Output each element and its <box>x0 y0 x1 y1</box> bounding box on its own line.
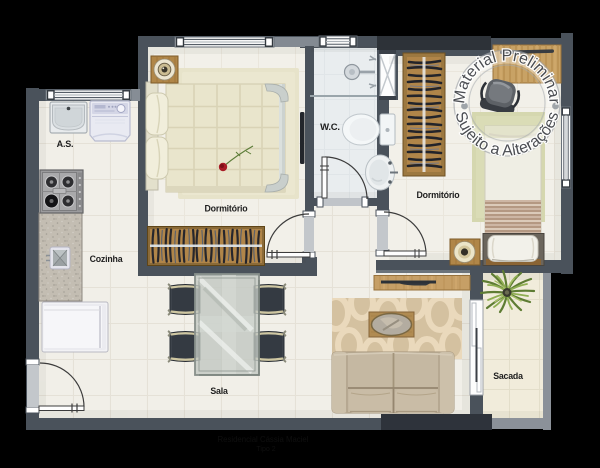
svg-text:Tipo 2: Tipo 2 <box>256 446 275 453</box>
svg-text:Sacada: Sacada <box>493 371 523 381</box>
svg-text:Dormitório: Dormitório <box>205 204 249 214</box>
svg-text:Residencial Cássia Maciel: Residencial Cássia Maciel <box>217 435 308 444</box>
svg-text:A.S.: A.S. <box>57 139 74 149</box>
svg-text:Dormitório: Dormitório <box>417 190 461 200</box>
svg-text:W.C.: W.C. <box>320 122 340 133</box>
svg-text:Sala: Sala <box>210 386 228 396</box>
svg-text:Cozinha: Cozinha <box>90 254 123 264</box>
